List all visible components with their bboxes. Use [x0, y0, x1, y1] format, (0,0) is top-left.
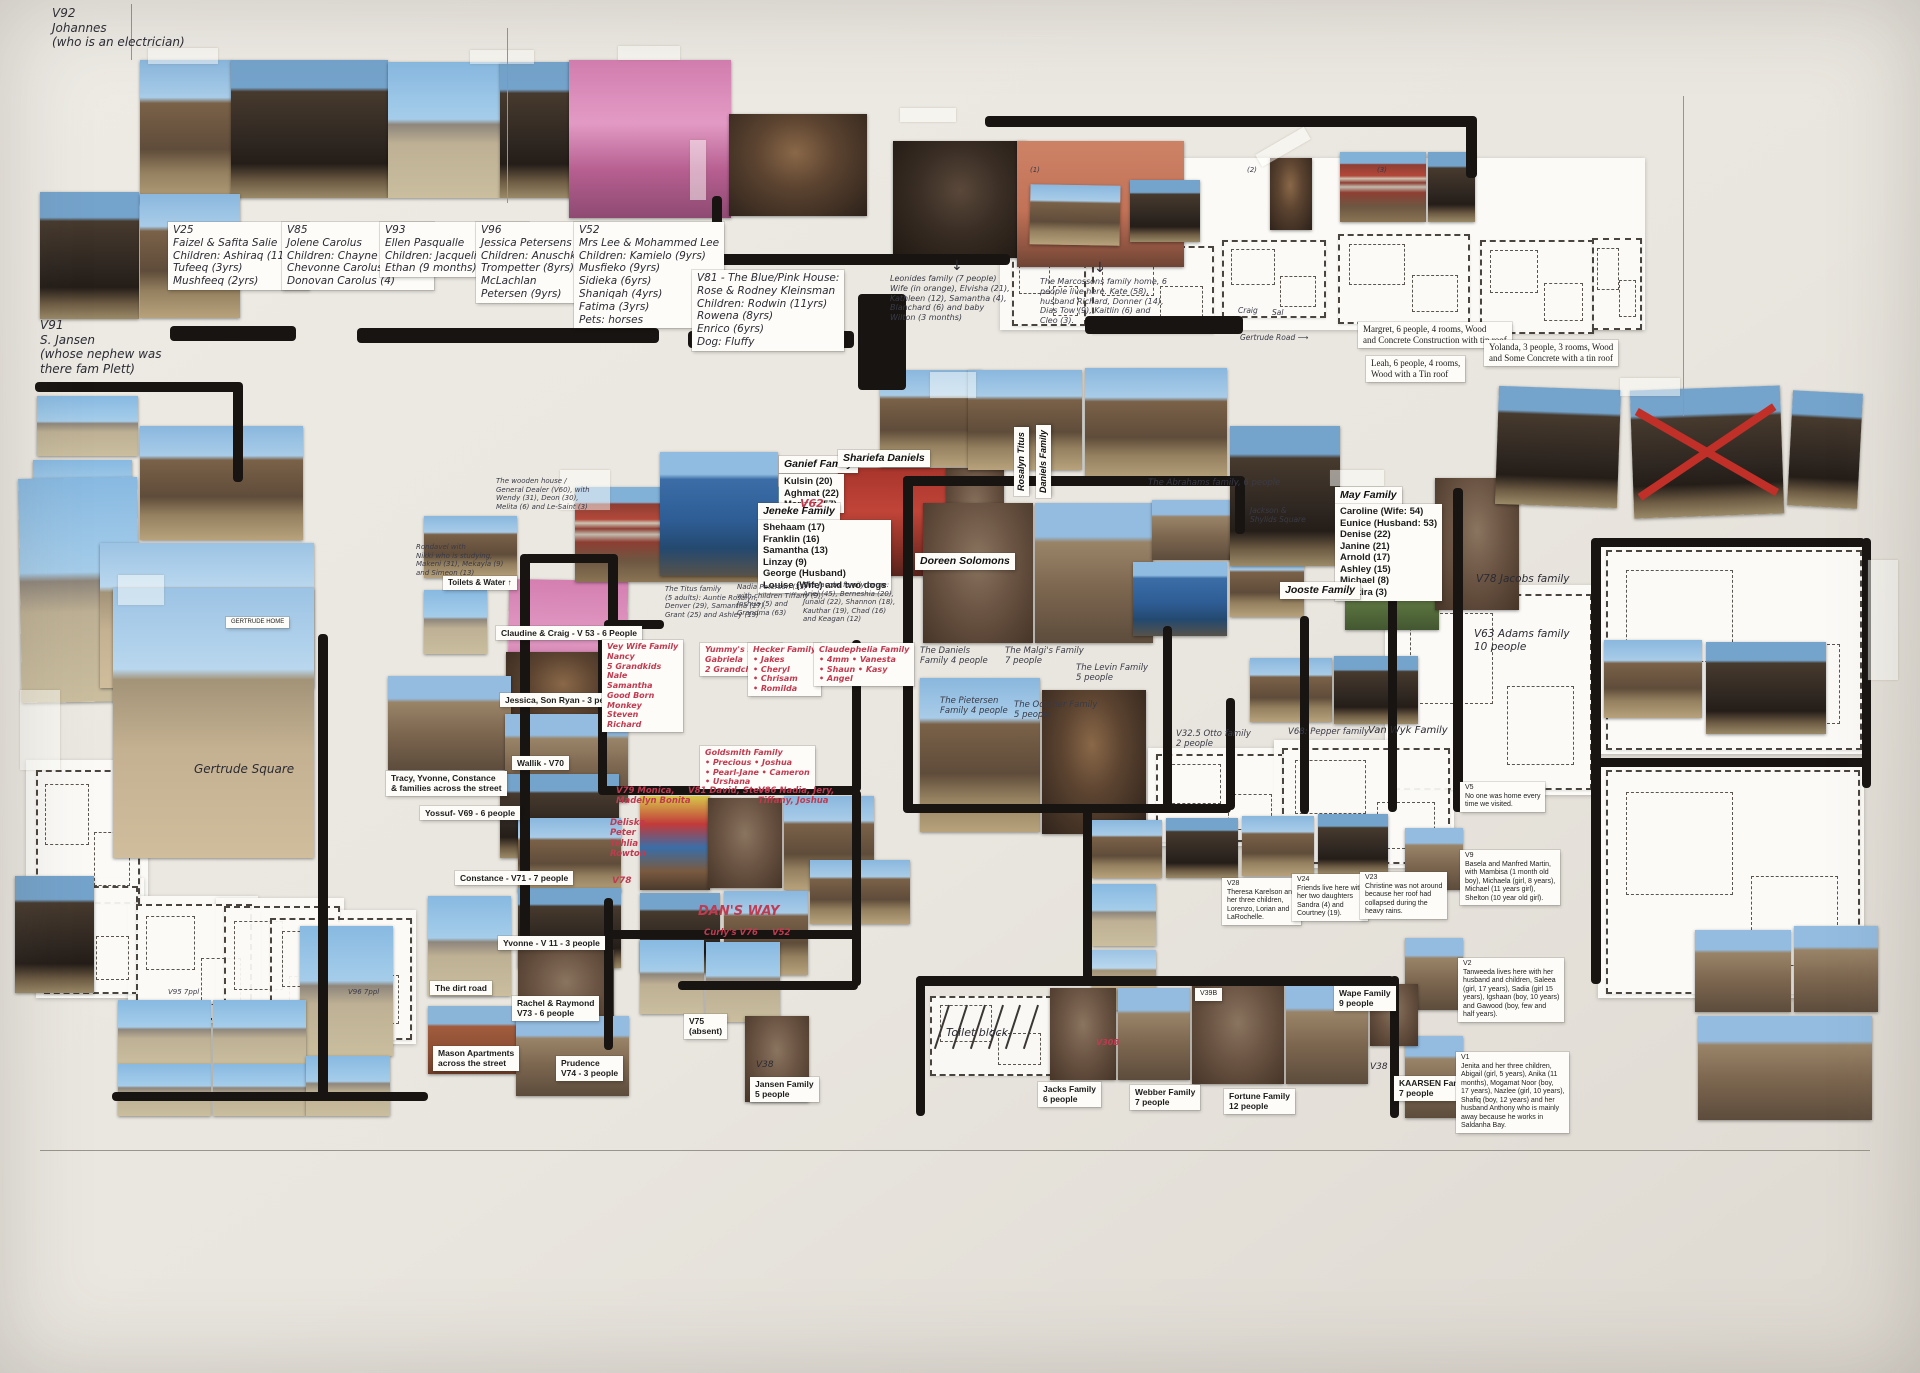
photo-v81-man: [708, 798, 782, 888]
label-webber-family: Webber Family 7 people: [1130, 1085, 1200, 1110]
floor-plan: [1480, 240, 1594, 334]
note-levin: The Levin Family 5 people: [1076, 663, 1148, 684]
label-toilets-water: Toilets & Water ↑: [443, 576, 517, 590]
red-x-mark: [1638, 404, 1777, 501]
marker-street-line: [170, 326, 296, 341]
plan-label-v96: V96 7ppl: [348, 988, 379, 997]
label-leah-plan: Leah, 6 people, 4 rooms, Wood with a Tin…: [1366, 356, 1465, 382]
photo-v81-children: [569, 60, 731, 218]
plan-room: [1167, 764, 1221, 805]
plan-room: [1619, 280, 1637, 317]
note-vey-wife-family: Vey Wife Family Nancy 5 Grandkids Nale S…: [602, 640, 683, 732]
note-v79-monica: V79 Monica, Madelyn Bonita: [616, 786, 691, 807]
tape-strip: [20, 690, 60, 770]
photo-plan-strip-3: [1270, 158, 1312, 230]
tape-strip: [1620, 378, 1680, 396]
note-malgis: The Malgi's Family 7 people: [1005, 646, 1084, 667]
photo-shack-row-1: [140, 60, 232, 204]
note-v38-kaarsen: V38: [1370, 1062, 1388, 1073]
photo-dansway-4: [640, 940, 704, 1014]
photo-right-shack-3: [1604, 640, 1702, 718]
note-v91: V91 S. Jansen (whose nephew was there fa…: [40, 318, 162, 377]
label-v75-absent: V75 (absent): [684, 1014, 727, 1039]
photo-shack-row-2: [231, 60, 388, 198]
photo-right-shack-2: [1334, 656, 1418, 724]
photo-window-woman: [923, 503, 1033, 643]
tape-strip: [618, 46, 680, 60]
photo-plan-strip-1: [1029, 184, 1120, 246]
photo-webber-girls: [1118, 988, 1190, 1080]
plan-number-3: (3): [1377, 166, 1387, 175]
photo-fence-2: [1787, 390, 1863, 509]
graffiti-v62: V62: [800, 497, 824, 510]
note-v23: V23 Christine was not around because her…: [1360, 872, 1447, 919]
note-jackson-square: Jackson & Shylids Square: [1250, 506, 1306, 524]
marker-street-line: [233, 382, 243, 482]
arrow-down-1: ↓: [951, 258, 963, 275]
photo-left-street-4: [118, 1064, 211, 1116]
photo-square-1: [37, 396, 138, 456]
photo-mid-row-1: [1092, 820, 1162, 878]
marker-street-line: [985, 116, 1473, 127]
tape-strip: [900, 108, 956, 122]
note-v2: V2 Tanweeda lives here with her husband …: [1458, 958, 1564, 1022]
floor-plan: [1338, 234, 1470, 324]
label-jacks-family: Jacks Family 6 people: [1038, 1082, 1101, 1107]
label-rachel-raymond: Rachel & Raymond V73 - 6 people: [512, 996, 599, 1021]
card-rosalyn-titus: Rosalyn Titus: [1014, 427, 1029, 496]
plan-label-gertrude-road: Gertrude Road ⟶: [1240, 333, 1308, 342]
marker-street-line: [524, 554, 614, 563]
card-shariefa-daniels: Shariefa Daniels: [838, 450, 930, 467]
plan-label-v95: V95 7ppl: [168, 988, 199, 997]
photo-fence-x: [1630, 385, 1784, 518]
note-v92: V92 Johannes (who is an electrician): [52, 6, 185, 50]
plan-number-1: (1): [1030, 166, 1040, 175]
marker-street-line: [1083, 810, 1092, 984]
plan-label-sal: Sal: [1272, 308, 1283, 317]
note-hecker-family: Hecker Family • Jakes • Cheryl • Chrisam…: [748, 643, 821, 696]
note-rondavel: Rondavel with Nikki who is studying, Mak…: [416, 543, 503, 577]
photo-spaza-shop: [640, 796, 710, 890]
photo-corrugated-tall: [1230, 426, 1340, 566]
photo-mid-row-3: [1242, 816, 1314, 876]
label-jansen-family: Jansen Family 5 people: [750, 1077, 819, 1102]
photo-br-family: [1698, 1016, 1872, 1120]
note-wooden-house: The wooden house / General Dealer (V60),…: [496, 477, 590, 511]
card-daniels-family: Daniels Family: [1036, 425, 1051, 498]
note-v52-red: V52: [772, 928, 790, 938]
marker-street-line: [1595, 538, 1865, 547]
label-tracy-yvonne: Tracy, Yvonne, Constance & families acro…: [386, 771, 507, 796]
label-dirt-road: The dirt road: [430, 981, 492, 995]
photo-br-couple-1: [1695, 930, 1791, 1012]
plan-room: [1626, 792, 1733, 895]
marker-street-line: [112, 1092, 428, 1101]
plan-room: [1507, 686, 1575, 765]
note-deliska: Deliska Peter Tehlia Rowton: [610, 818, 646, 859]
photo-plan-strip-4: [1340, 152, 1426, 222]
note-otto: V32.5 Otto family 2 people: [1176, 729, 1251, 750]
label-yvonne: Yvonne - V 11 - 3 people: [498, 936, 605, 950]
photo-mid-row-2: [1166, 818, 1238, 878]
note-v86-nadia: V86 Nadia, Jery, Tiffany, Joshua: [758, 786, 834, 807]
marker-street-line: [1226, 698, 1235, 810]
photo-left-street-5: [213, 1064, 306, 1116]
marker-street-line: [604, 898, 613, 1050]
photo-jacks-girl: [1050, 988, 1116, 1080]
note-v28: V28 Theresa Karelson and her three child…: [1222, 878, 1301, 925]
pencil-line: [507, 28, 508, 203]
marker-street-line: [1163, 626, 1172, 812]
plan-number-2: (2): [1247, 166, 1257, 175]
photo-left-shack: [40, 192, 139, 319]
note-pepper: V68: Pepper family: [1288, 727, 1369, 737]
label-fortune-family: Fortune Family 12 people: [1224, 1089, 1295, 1114]
plan-room: [45, 784, 89, 846]
note-v78-red: V78: [612, 876, 632, 887]
marker-street-line: [718, 254, 1010, 265]
label-yossuf: Yossuf- V69 - 6 people: [420, 806, 520, 820]
photo-left-street-3: [213, 1000, 306, 1064]
plan-room: [1231, 249, 1275, 285]
note-claudephelia-family: Claudephelia Family • 4mm • Vanesta • Sh…: [814, 643, 914, 686]
label-mason-apartments: Mason Apartments across the street: [433, 1046, 519, 1071]
photo-left-street-2: [118, 1000, 211, 1064]
card-doreen-solomons: Doreen Solomons: [915, 553, 1015, 570]
marker-street-line: [852, 790, 861, 986]
photo-right-shack-1: [1250, 658, 1332, 722]
marker-street-line: [1595, 758, 1869, 767]
note-marcossons: The Marcossons family home, 6 people liv…: [1040, 277, 1167, 326]
photo-mid-small-1: [1092, 884, 1156, 946]
label-v39b: V39B: [1195, 988, 1222, 1001]
tape-strip: [1868, 560, 1898, 680]
photo-br-couple-2: [1794, 926, 1878, 1012]
pencil-line: [1683, 96, 1684, 416]
note-v96: V96 Jessica Petersens Children: Anuschka…: [476, 222, 588, 303]
photo-left-dark-shack: [15, 876, 94, 993]
note-goldsmith-family: Goldsmith Family • Precious • Joshua • P…: [700, 746, 815, 789]
note-abrahams-family: The Abrahams family, 6 people: [1148, 478, 1280, 488]
note-v38-jansen: V38: [756, 1060, 774, 1071]
tape-strip: [470, 50, 534, 64]
marker-street-line: [357, 328, 659, 343]
photo-square-3: [140, 426, 303, 540]
floor-plan: [1592, 238, 1642, 330]
note-v1: V1 Jenita and her three children, Abigai…: [1456, 1052, 1569, 1133]
note-v9: V9 Basela and Manfred Martin, with Mambi…: [1460, 850, 1560, 905]
arrow-down-2: ↓: [1094, 260, 1106, 277]
plan-label-craig: Craig: [1238, 306, 1258, 315]
card-may-header: May Family: [1335, 487, 1402, 504]
photo-shack-row-3: [388, 62, 500, 198]
marker-street-line: [1453, 488, 1463, 812]
note-curlys-v76: Curly's V76: [704, 928, 758, 938]
label-prudence: Prudence V74 - 3 people: [556, 1056, 623, 1081]
label-claudine-craig: Claudine & Craig - V 53 - 6 People: [496, 626, 642, 640]
label-wape-family: Wape Family 9 people: [1334, 986, 1396, 1011]
collage-board: V92 Johannes (who is an electrician)V91 …: [0, 0, 1920, 1373]
marker-street-line: [903, 804, 1231, 813]
plan-room: [1412, 275, 1458, 311]
note-v81-blue-pink-house: V81 - The Blue/Pink House: Rose & Rodney…: [692, 270, 844, 351]
photo-right-shack-4: [1706, 642, 1826, 734]
photo-lounge-family: [729, 114, 867, 216]
photo-doorway-family: [893, 141, 1027, 258]
marker-street-line: [318, 634, 328, 1098]
note-v63-adams: V63 Adams family 10 people: [1474, 628, 1570, 654]
label-gertrude-home: GERTRUDE HOME: [226, 617, 289, 628]
note-van-wyk: Van Wyk Family: [1368, 725, 1448, 737]
photo-blue-shack: [1133, 562, 1227, 636]
tape-strip: [148, 48, 218, 64]
pencil-line: [40, 1150, 1870, 1151]
photo-toilets: [424, 590, 487, 654]
card-jeneke-header: Jeneke Family: [758, 503, 840, 520]
marker-street-line: [916, 976, 925, 1116]
note-v5: V5 No one was home every time we visited…: [1460, 782, 1545, 812]
note-gertrude-square: Gertrude Square: [194, 762, 294, 777]
plan-room: [1349, 244, 1405, 286]
photo-plan-strip-2: [1130, 180, 1200, 242]
marker-street-line: [35, 382, 241, 392]
tape-strip: [118, 575, 164, 605]
marker-street-line: [608, 554, 618, 628]
note-v24: V24 Friends live here with her two daugh…: [1292, 874, 1368, 921]
tape-strip: [690, 140, 706, 200]
note-dans-way: DAN'S WAY: [698, 904, 779, 920]
note-v78-jacobs: V78 Jacobs family: [1476, 573, 1570, 586]
note-jacobs-home: The Jacobs family home: Ariel (45), Bern…: [803, 581, 895, 624]
note-daniels-4: The Daniels Family 4 people: [920, 646, 988, 667]
label-constance: Constance - V71 - 7 people: [455, 871, 573, 885]
photo-square-kids: [113, 588, 314, 858]
plan-room: [1280, 276, 1316, 308]
note-pietersen: The Pietersen Family 4 people: [940, 696, 1008, 717]
marker-street-line: [520, 554, 530, 946]
label-yolanda-plan: Yolanda, 3 people, 3 rooms, Wood and Som…: [1484, 340, 1618, 366]
photo-abrahams-top: [1085, 368, 1227, 480]
note-october: The October Family 5 people: [1014, 700, 1097, 721]
plan-room: [1490, 250, 1538, 293]
plan-room: [96, 936, 129, 980]
note-leonides: Leonides family (7 people) Wife (in oran…: [890, 274, 1010, 323]
photo-fence-1: [1495, 386, 1621, 508]
note-v30b: V30B: [1096, 1038, 1119, 1048]
plan-room: [1597, 248, 1618, 290]
card-jooste-family: Jooste Family: [1280, 582, 1360, 599]
note-toilet-block: Toilet block: [946, 1026, 1008, 1039]
tape-strip: [930, 372, 976, 398]
marker-street-line: [916, 976, 1394, 986]
photo-mid-row-4: [1318, 814, 1388, 874]
marker-street-line: [1466, 116, 1477, 178]
marker-street-line: [678, 981, 858, 990]
tape-strip: [1330, 470, 1384, 486]
photo-tracy-group: [388, 676, 511, 770]
plan-room: [146, 916, 195, 970]
label-wallik: Wallik - V70: [512, 756, 569, 770]
plan-room: [1544, 283, 1583, 321]
marker-street-line: [1300, 616, 1309, 814]
